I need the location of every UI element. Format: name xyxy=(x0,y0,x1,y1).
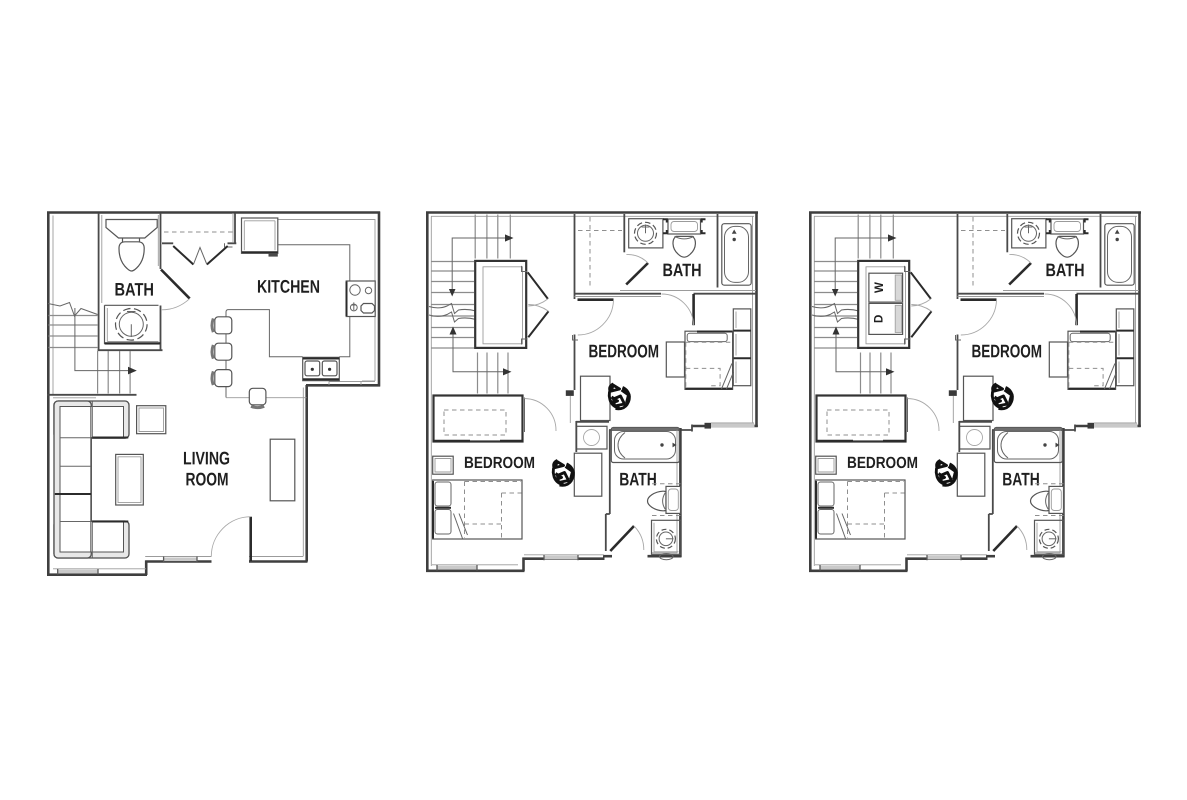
svg-text:D: D xyxy=(874,315,886,323)
svg-text:BATH: BATH xyxy=(114,280,154,300)
svg-text:ROOM: ROOM xyxy=(185,469,228,489)
svg-text:W: W xyxy=(874,282,886,293)
svg-text:KITCHEN: KITCHEN xyxy=(257,277,320,297)
svg-text:LIVING: LIVING xyxy=(183,448,230,468)
